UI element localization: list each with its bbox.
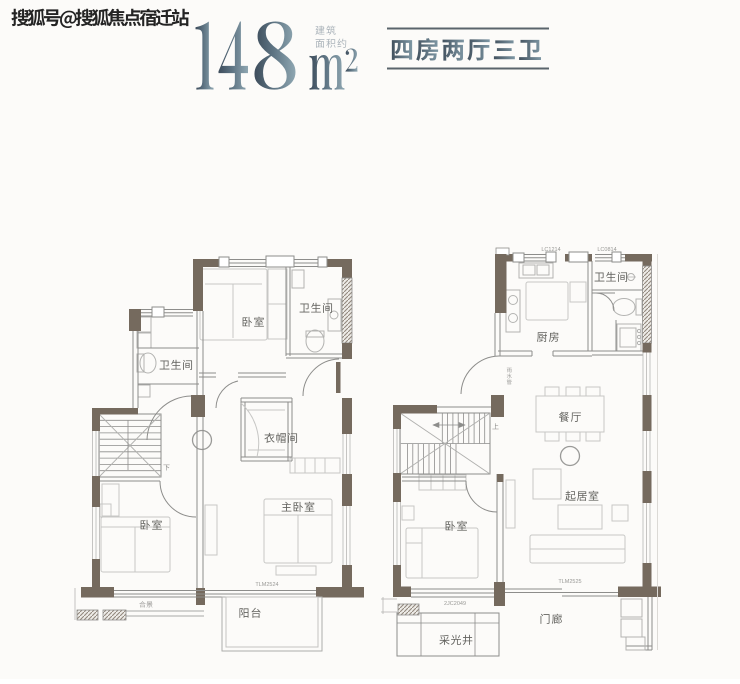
svg-text:2JC2049: 2JC2049 <box>444 601 466 607</box>
svg-text:TLM2524: TLM2524 <box>255 582 278 588</box>
svg-text:TLM2525: TLM2525 <box>558 579 581 585</box>
svg-text:LC1214: LC1214 <box>541 247 560 253</box>
svg-text:LC0814: LC0814 <box>597 247 616 253</box>
